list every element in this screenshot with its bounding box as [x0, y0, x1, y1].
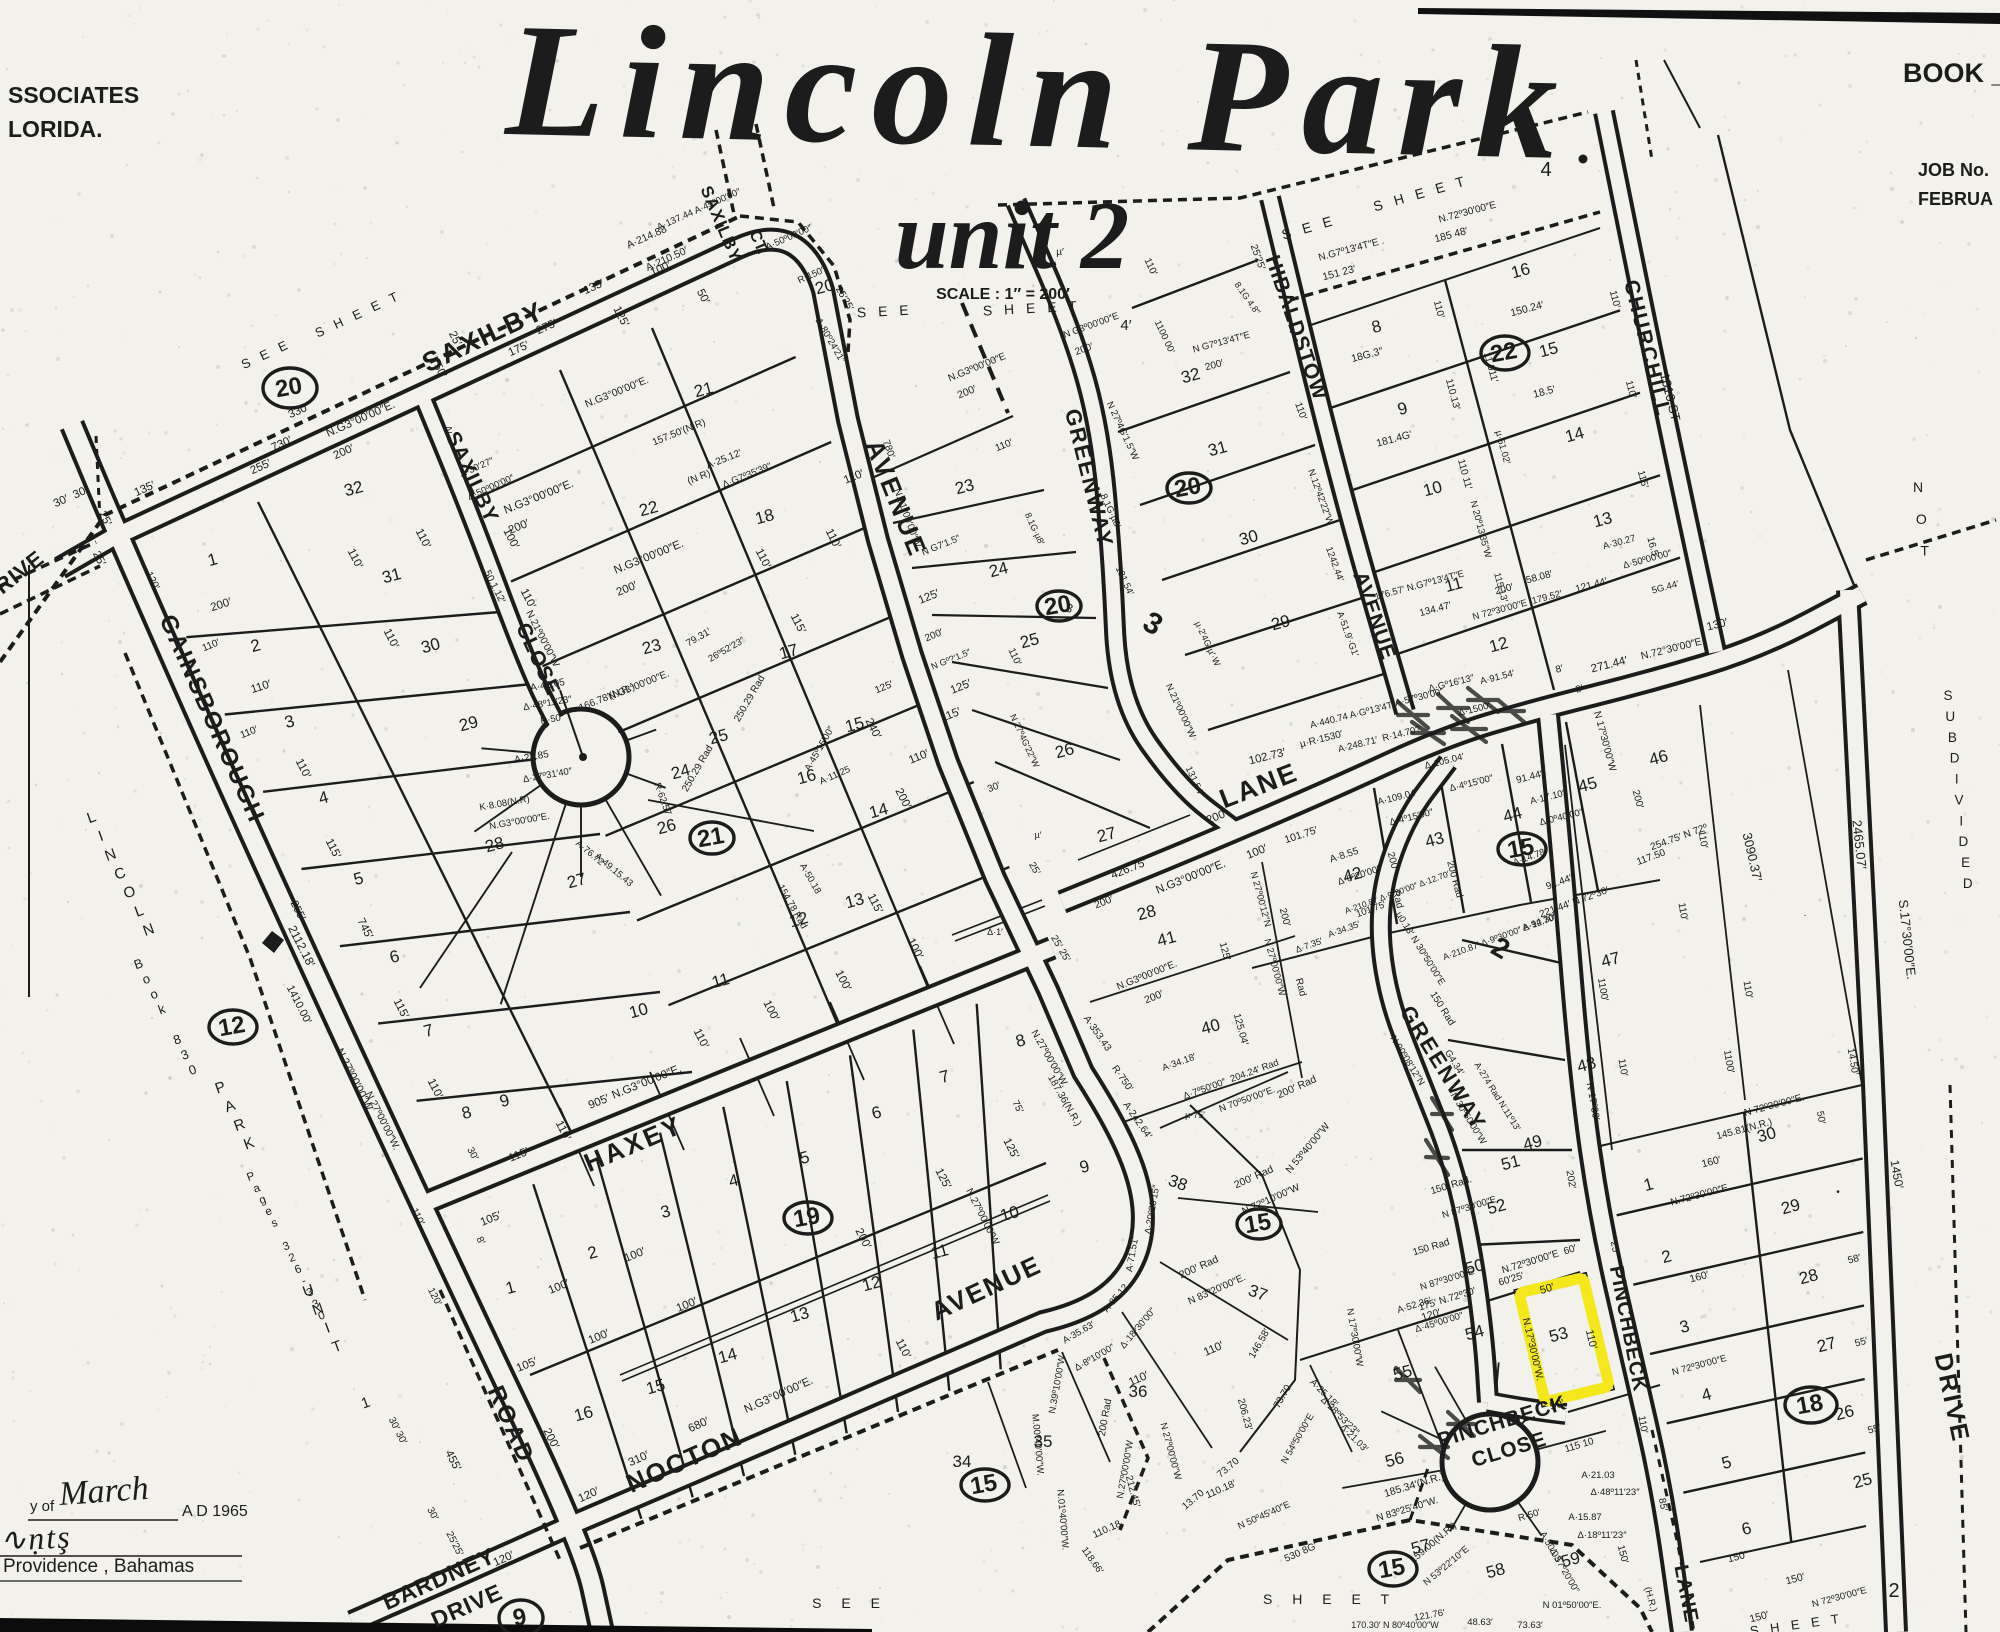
svg-text:Providence , Bahamas: Providence , Bahamas — [3, 1556, 194, 1577]
svg-text:BOOK ___: BOOK ___ — [1903, 58, 2000, 88]
svg-text:4: 4 — [1540, 159, 1551, 181]
svg-text:B: B — [1948, 730, 1957, 745]
svg-text:SSOCIATES: SSOCIATES — [8, 82, 139, 108]
svg-text:T: T — [1920, 543, 1929, 559]
svg-text:20: 20 — [1172, 472, 1203, 503]
svg-text:A·15.87: A·15.87 — [1568, 1512, 1601, 1523]
svg-text:N: N — [1913, 479, 1923, 495]
svg-text:∿ṇtş: ∿ṇtş — [0, 1518, 72, 1558]
svg-text:A D 1965: A D 1965 — [182, 1503, 248, 1520]
svg-text:N: N — [444, 426, 455, 433]
svg-text:A·21.03: A·21.03 — [1581, 1470, 1614, 1481]
svg-text:JOB No.: JOB No. — [1918, 160, 1989, 180]
svg-text:D: D — [1959, 834, 1969, 849]
svg-text:2: 2 — [1888, 1580, 1899, 1602]
svg-text:Δ·18º11′23″: Δ·18º11′23″ — [1577, 1530, 1627, 1541]
svg-text:15: 15 — [968, 1469, 999, 1500]
svg-text:Δ·48º11′23″: Δ·48º11′23″ — [1590, 1487, 1640, 1498]
svg-text:S E E: S E E — [856, 302, 913, 321]
svg-text:O: O — [1916, 511, 1927, 527]
svg-text:D: D — [1963, 876, 1973, 891]
svg-text:21: 21 — [695, 822, 726, 853]
svg-text:I: I — [1955, 772, 1959, 787]
svg-text:170.30′ N 80º40′00″W: 170.30′ N 80º40′00″W — [1351, 1620, 1439, 1630]
svg-text:I: I — [1959, 813, 1963, 828]
svg-text:73.63′: 73.63′ — [1517, 1620, 1543, 1631]
svg-text:U: U — [1945, 709, 1955, 724]
svg-text:85′: 85′ — [1656, 1497, 1669, 1512]
svg-text:D: D — [1950, 751, 1960, 766]
svg-text:4′: 4′ — [1120, 317, 1131, 334]
svg-text:March: March — [57, 1470, 150, 1513]
svg-text:S E E: S E E — [812, 1595, 888, 1611]
svg-text:V: V — [1954, 792, 1963, 807]
svg-text:FEBRUA: FEBRUA — [1918, 189, 1993, 209]
svg-text:50′: 50′ — [1814, 1110, 1827, 1125]
svg-text:N 01º50′00″E.: N 01º50′00″E. — [1543, 1600, 1602, 1611]
svg-text:19: 19 — [791, 1202, 822, 1233]
svg-text:E: E — [1961, 855, 1970, 870]
svg-text:15: 15 — [1376, 1553, 1407, 1584]
svg-text:•: • — [1836, 1187, 1840, 1198]
svg-text:·: · — [1803, 910, 1806, 921]
svg-text:25′: 25′ — [1608, 1240, 1621, 1255]
svg-text:12: 12 — [216, 1011, 247, 1042]
svg-text:µ′: µ′ — [1056, 247, 1064, 258]
svg-text:µ·75′: µ·75′ — [1185, 1110, 1205, 1120]
svg-text:Lincoln Park: Lincoln Park — [502, 0, 1574, 194]
svg-text:y of: y of — [30, 1498, 55, 1515]
svg-text:Δ·1′: Δ·1′ — [987, 927, 1003, 937]
svg-text:48.63′: 48.63′ — [1467, 1617, 1493, 1628]
svg-text:unit 2: unit 2 — [895, 182, 1130, 289]
svg-text:18: 18 — [1794, 1389, 1825, 1420]
svg-text:S: S — [1943, 688, 1952, 703]
svg-text:34: 34 — [953, 1452, 972, 1471]
svg-text:µ′: µ′ — [1035, 830, 1042, 840]
svg-text:20: 20 — [273, 372, 304, 403]
svg-text:S H E E T: S H E E T — [1263, 1591, 1397, 1607]
svg-text:LORIDA.: LORIDA. — [8, 116, 103, 142]
